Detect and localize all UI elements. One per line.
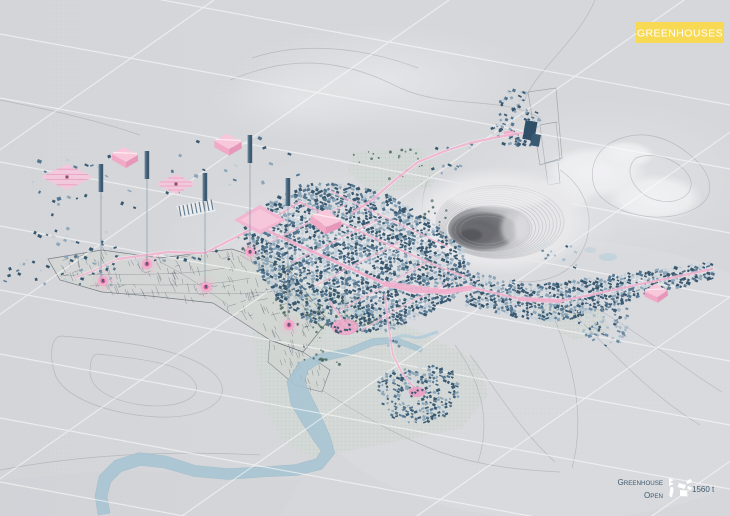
svg-text:GREENHOUSE: GREENHOUSE [618,478,663,487]
svg-text:1560 t: 1560 t [692,485,715,494]
svg-text:GREENHOUSES: GREENHOUSES [637,28,723,40]
svg-text:OPEN: OPEN [644,491,663,500]
